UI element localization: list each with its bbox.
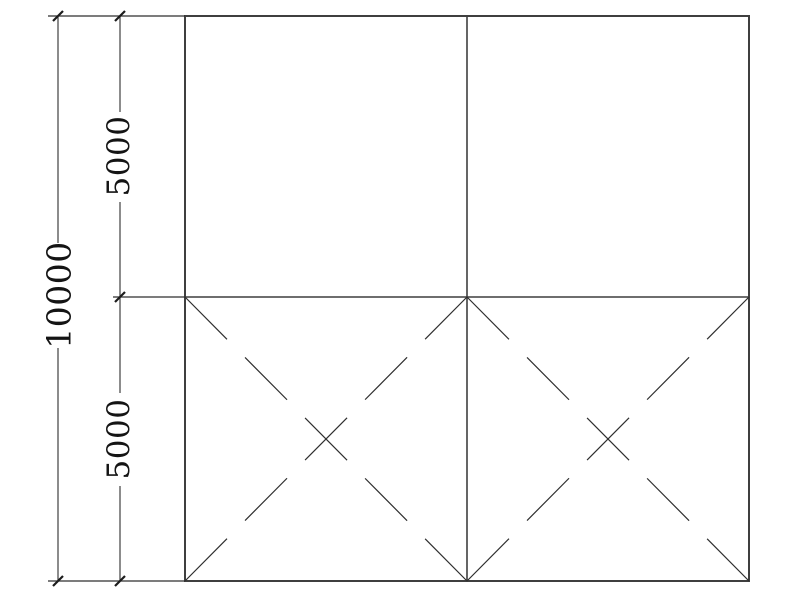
cad-canvas: 5000 5000 10000 <box>0 0 800 600</box>
cad-viewport: 5000 5000 10000 <box>0 0 800 600</box>
dimension-label-lower-segment: 5000 <box>101 399 137 480</box>
dimension-label-upper-segment: 5000 <box>101 116 137 197</box>
dimension-label-overall-height: 10000 <box>40 241 79 348</box>
